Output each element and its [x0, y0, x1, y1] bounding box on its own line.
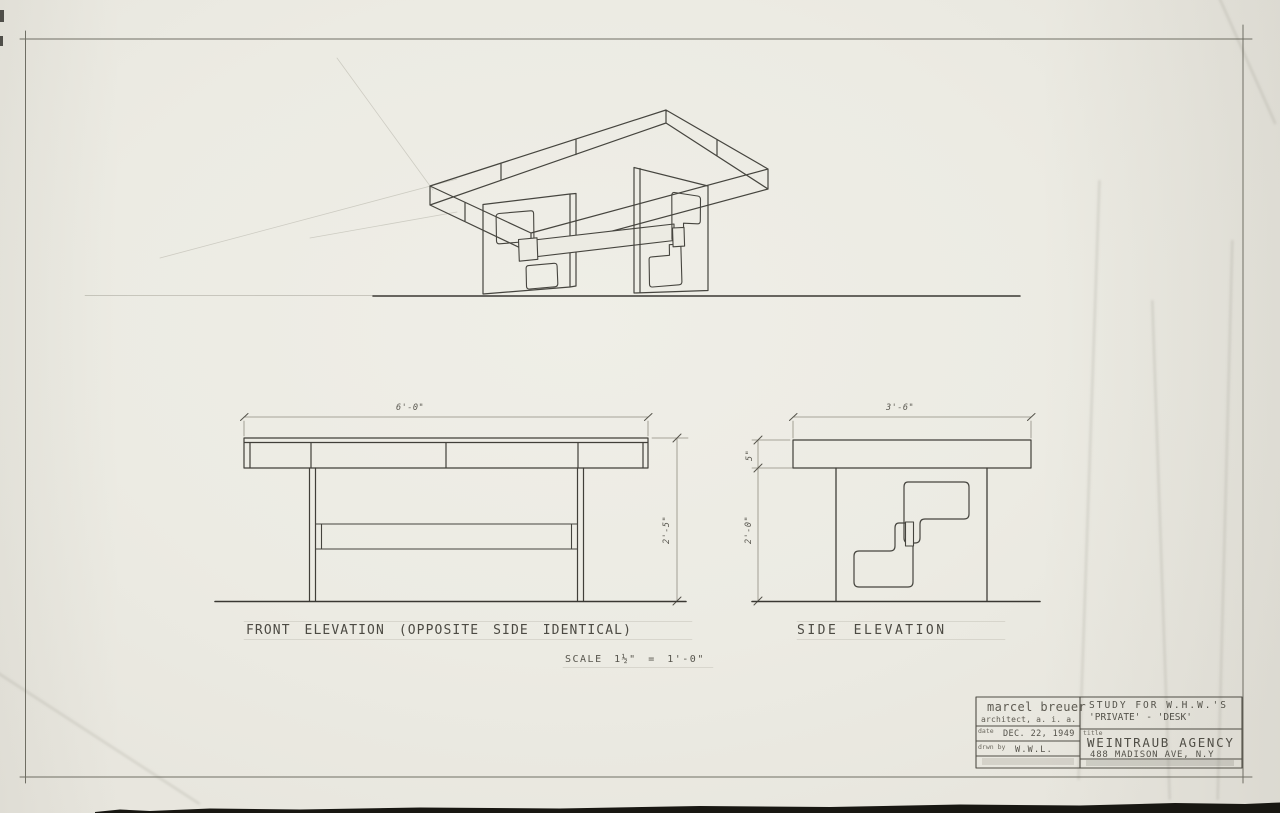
architect-title: architect, a. i. a. [981, 715, 1076, 724]
side-dimension-lines [752, 417, 1031, 601]
drawing-sheet: 6'-0" 3'-6" 2'-5" 5" 2'-0" FRONT ELEVATI… [0, 0, 1280, 813]
photo-edge-specks [0, 10, 4, 46]
photo-edge-band [95, 803, 1280, 813]
side-top-thickness-dimension: 5" [745, 450, 755, 461]
front-legs [310, 468, 584, 601]
perspective-view [85, 58, 1020, 296]
front-tabletop [244, 438, 648, 468]
date-value: DEC. 22, 1949 [1003, 729, 1075, 739]
photo-edge [0, 10, 1280, 813]
construction-lines [160, 58, 457, 258]
side-elevation-label: SIDE ELEVATION [797, 623, 947, 638]
client-address: 488 MADISON AVE, N.Y [1090, 750, 1214, 760]
architect-name: marcel breuer [987, 700, 1086, 714]
scale-note: SCALE 1½" = 1'-0" [565, 654, 705, 665]
tabletop-slab-edges [430, 110, 768, 253]
front-height-dimension: 2'-5" [662, 516, 672, 544]
study-line2: 'PRIVATE' - 'DESK' [1089, 712, 1192, 723]
side-stretcher-end [906, 522, 914, 546]
drawn-by-value: W.W.L. [1015, 745, 1053, 755]
front-stretcher [316, 524, 578, 549]
side-under-height-dimension: 2'-0" [744, 516, 754, 544]
side-width-dimension: 3'-6" [886, 403, 914, 413]
drawn-by-label: drwn by [978, 743, 1005, 751]
title-block-smudge [982, 758, 1074, 765]
front-elevation-label: FRONT ELEVATION (OPPOSITE SIDE IDENTICAL… [246, 623, 632, 638]
front-width-dimension: 6'-0" [396, 403, 424, 413]
side-elevation-view [752, 414, 1040, 606]
side-dimension-ticks [754, 414, 1035, 606]
sheet-border [20, 25, 1252, 783]
title-block-smudge [1086, 760, 1234, 766]
study-line1: STUDY FOR W.H.W.'S [1089, 700, 1228, 711]
front-elevation-view [215, 414, 688, 606]
client-name: WEINTRAUB AGENCY [1087, 735, 1235, 750]
drawing-linework [0, 0, 1280, 813]
date-label: date [978, 727, 994, 735]
side-tabletop [793, 440, 1031, 468]
sheet-border-lines [20, 25, 1252, 783]
